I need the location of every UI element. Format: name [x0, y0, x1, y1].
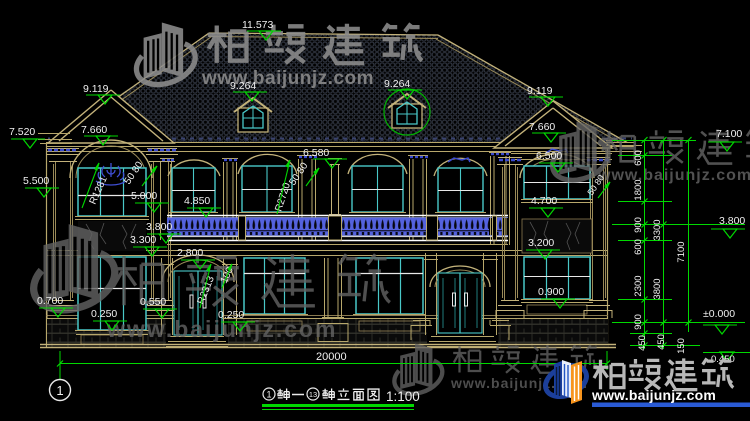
svg-text:0.250: 0.250 [218, 309, 244, 321]
svg-text:11.573: 11.573 [242, 19, 273, 31]
svg-text:3300: 3300 [652, 219, 663, 240]
svg-text:3.200: 3.200 [528, 237, 554, 249]
svg-text:900: 900 [633, 314, 644, 330]
svg-text:13: 13 [309, 390, 317, 399]
svg-text:0.550: 0.550 [140, 296, 166, 308]
svg-text:0.700: 0.700 [37, 295, 63, 307]
svg-text:±0.000: ±0.000 [703, 308, 735, 320]
svg-text:20000: 20000 [316, 351, 347, 363]
svg-text:2300: 2300 [633, 275, 644, 296]
svg-text:600: 600 [633, 239, 644, 255]
svg-text:1: 1 [56, 383, 63, 398]
svg-text:www.baijunjz.com: www.baijunjz.com [597, 167, 750, 184]
svg-text:9.119: 9.119 [527, 85, 553, 97]
svg-text:4.700: 4.700 [531, 195, 557, 207]
svg-text:450: 450 [637, 335, 648, 351]
svg-text:0.900: 0.900 [538, 286, 564, 298]
svg-text:6.500: 6.500 [536, 150, 562, 162]
svg-text:3800: 3800 [652, 278, 663, 299]
svg-text:7.660: 7.660 [529, 121, 555, 133]
svg-text:1800: 1800 [633, 179, 644, 200]
svg-text:2.800: 2.800 [177, 247, 203, 259]
svg-text:150: 150 [676, 338, 687, 354]
svg-text:1:100: 1:100 [386, 389, 420, 404]
svg-text:3.800: 3.800 [146, 221, 172, 233]
svg-text:7100: 7100 [676, 241, 687, 262]
svg-text:0.250: 0.250 [91, 308, 117, 320]
svg-text:7.660: 7.660 [81, 124, 107, 136]
svg-text:www.baijunjz.com: www.baijunjz.com [591, 387, 716, 403]
svg-text:7.520: 7.520 [9, 126, 35, 138]
svg-text:3.300: 3.300 [130, 234, 156, 246]
svg-text:3.800: 3.800 [719, 215, 745, 227]
svg-text:www.baijunjz.com: www.baijunjz.com [201, 68, 374, 89]
svg-text:6.580: 6.580 [303, 147, 329, 159]
svg-text:600: 600 [633, 150, 644, 166]
svg-text:9.264: 9.264 [230, 80, 256, 92]
svg-text:9.119: 9.119 [83, 83, 109, 95]
svg-text:5.500: 5.500 [23, 175, 49, 187]
svg-text:5.000: 5.000 [131, 190, 157, 202]
svg-text:450: 450 [656, 334, 667, 350]
svg-text:7.100: 7.100 [716, 128, 742, 140]
svg-text:1: 1 [266, 390, 271, 400]
svg-text:4.850: 4.850 [184, 195, 210, 207]
svg-text:900: 900 [633, 217, 644, 233]
svg-text:9.264: 9.264 [384, 78, 410, 90]
